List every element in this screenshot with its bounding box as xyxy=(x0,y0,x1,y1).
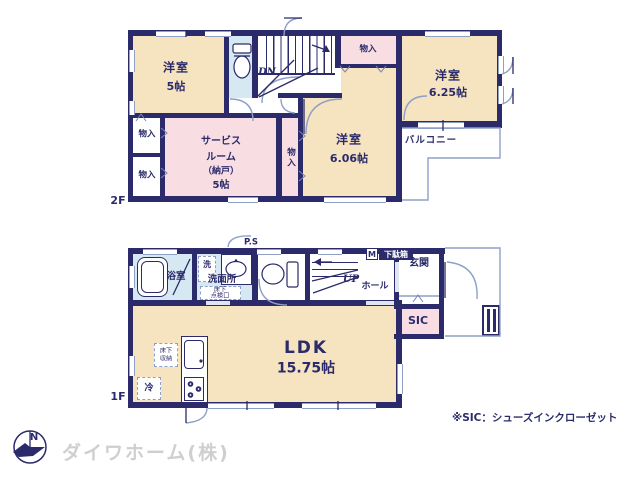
door-arc xyxy=(230,99,253,121)
washroom-label: 洗面所 xyxy=(208,275,237,285)
service-room-l2: ルーム xyxy=(206,153,236,164)
sic-note: ※SIC：シューズインクローゼット xyxy=(452,410,617,425)
stairs-up-label: UP xyxy=(343,275,359,286)
bedroom625-size: 6.25帖 xyxy=(429,87,467,99)
stair-winders-2f xyxy=(258,60,318,97)
front-door-arc xyxy=(447,262,477,299)
door-arc xyxy=(306,99,342,134)
service-room-l3: （納戸） xyxy=(203,167,239,176)
closet-left2-label: 物入 xyxy=(138,172,155,181)
door-arc xyxy=(281,99,295,113)
ps-label: P.S xyxy=(244,239,258,248)
porch-outline xyxy=(445,248,500,336)
balcony-label: バルコニー xyxy=(405,136,457,146)
casement-arc xyxy=(502,57,513,74)
door-arc xyxy=(404,96,427,120)
hall-label: ホール xyxy=(361,282,388,291)
stairs-dn-label: DN xyxy=(258,68,276,79)
toilet-icon-1f xyxy=(262,262,298,287)
sic-label: SIC xyxy=(408,315,428,327)
underfloor-access-l2: 点検口 xyxy=(211,293,230,299)
underfloor-storage-l2: 収納 xyxy=(160,356,172,362)
bath-label: 浴室 xyxy=(166,272,185,282)
stair-arrowhead-1f xyxy=(314,258,321,266)
closet-top-label: 物入 xyxy=(359,46,376,55)
casement-arc xyxy=(502,88,513,104)
compass-n-label: N xyxy=(30,432,38,443)
service-room-l4: 5帖 xyxy=(213,181,230,192)
compass-icon: N xyxy=(13,431,46,463)
kitchen-faucet xyxy=(199,359,202,362)
laundry-label: 洗 xyxy=(203,261,211,269)
bedroom606-name: 洋室 xyxy=(336,134,362,147)
underfloor-storage-l1: 床下 xyxy=(160,348,172,354)
toilet-icon-2f xyxy=(233,44,251,78)
bedroom5-size: 5帖 xyxy=(167,81,186,93)
plan-linework: N xyxy=(0,0,640,480)
floor1-label: 1F xyxy=(110,391,125,403)
bedroom606-size: 6.06帖 xyxy=(330,153,368,165)
faucet-dot xyxy=(235,259,238,262)
door-arc xyxy=(186,408,207,423)
ldk-name: LDK xyxy=(284,340,328,358)
floor2-label: 2F xyxy=(110,195,125,207)
ldk-size: 15.75帖 xyxy=(277,362,335,377)
closet-mid-label: 物入 xyxy=(286,148,295,169)
fridge-label: 冷 xyxy=(144,384,153,393)
entrance-label: 玄関 xyxy=(409,259,429,270)
bedroom625-name: 洋室 xyxy=(435,70,461,83)
door-arc xyxy=(284,18,302,36)
closet-left1-label: 物入 xyxy=(138,131,155,140)
service-room-l1: サービス xyxy=(201,137,241,148)
floor-plan: M 下駄箱 xyxy=(0,0,640,480)
company-name: ダイワホーム(株) xyxy=(62,438,230,465)
stove-burners xyxy=(188,381,202,398)
bedroom5-name: 洋室 xyxy=(163,62,189,75)
